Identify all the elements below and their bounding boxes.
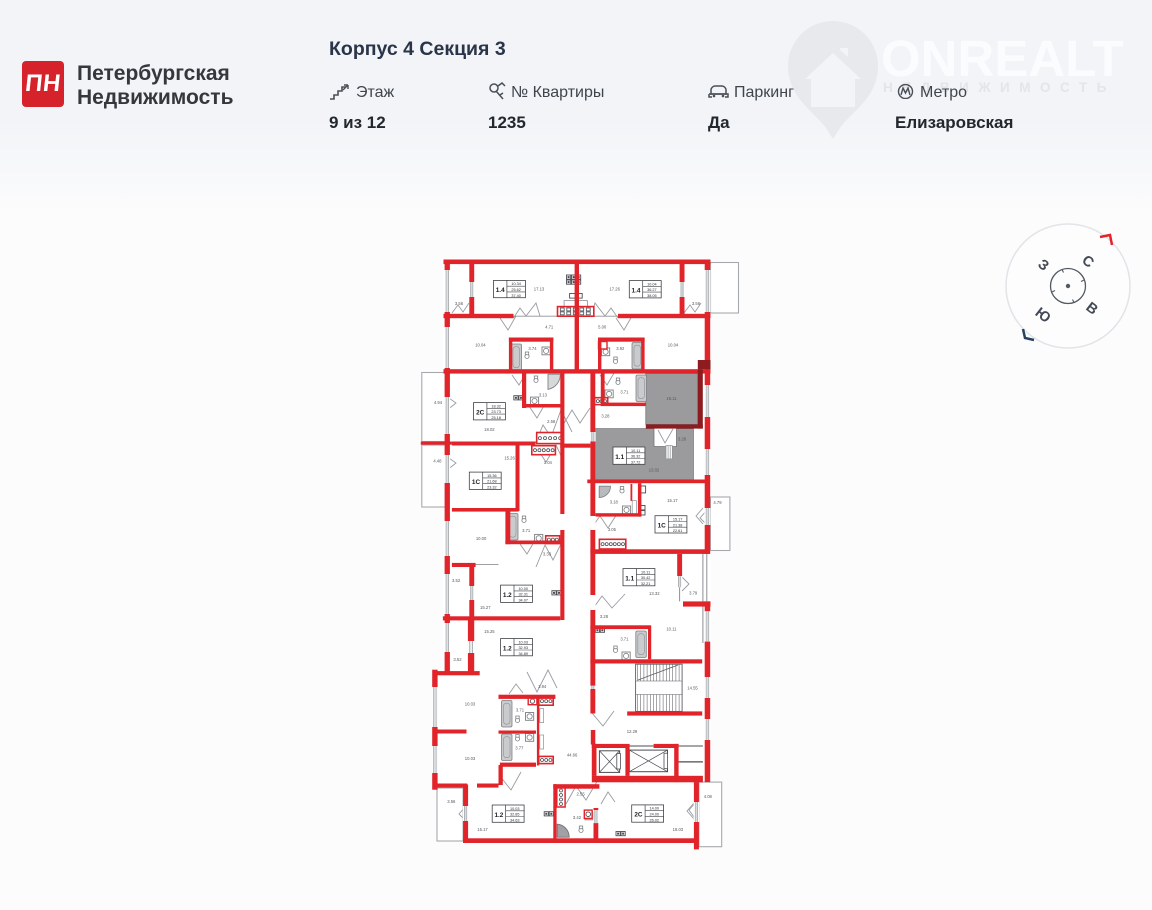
- svg-text:3.52: 3.52: [452, 578, 461, 583]
- svg-text:3.28: 3.28: [601, 414, 610, 419]
- svg-text:1.4: 1.4: [496, 287, 505, 294]
- svg-text:3.52: 3.52: [453, 657, 462, 662]
- svg-text:13.32: 13.32: [649, 591, 660, 596]
- svg-text:3.74: 3.74: [528, 346, 537, 351]
- svg-text:23.32: 23.32: [487, 486, 497, 490]
- svg-text:15.17: 15.17: [673, 518, 683, 522]
- svg-text:1.1: 1.1: [615, 454, 624, 461]
- svg-text:1.2: 1.2: [503, 645, 512, 652]
- svg-text:3.42: 3.42: [573, 815, 582, 820]
- svg-text:4.94: 4.94: [434, 400, 443, 405]
- svg-text:15.26: 15.26: [504, 456, 515, 461]
- svg-text:3.28: 3.28: [678, 436, 687, 441]
- svg-text:24.00: 24.00: [650, 813, 660, 817]
- svg-text:36.32: 36.32: [631, 455, 641, 459]
- svg-text:10.04: 10.04: [475, 343, 486, 348]
- svg-text:32.93: 32.93: [518, 646, 528, 650]
- svg-text:3.92: 3.92: [616, 346, 625, 351]
- svg-text:22.61: 22.61: [673, 529, 683, 533]
- svg-text:34.07: 34.07: [518, 599, 528, 603]
- svg-text:10.11: 10.11: [631, 449, 640, 453]
- svg-text:4.71: 4.71: [545, 325, 554, 330]
- svg-text:10.04: 10.04: [647, 282, 657, 286]
- svg-text:32.85: 32.85: [510, 813, 520, 817]
- svg-text:36.27: 36.27: [647, 288, 657, 292]
- svg-text:16.11: 16.11: [666, 396, 677, 401]
- svg-text:3.18: 3.18: [610, 500, 619, 505]
- svg-text:23.73: 23.73: [491, 410, 501, 414]
- svg-text:4.48: 4.48: [433, 459, 442, 464]
- svg-text:2С: 2С: [634, 812, 643, 819]
- svg-text:3.04: 3.04: [544, 460, 553, 465]
- svg-text:37.72: 37.72: [631, 460, 641, 464]
- svg-text:26.02: 26.02: [650, 818, 660, 822]
- svg-text:10.00: 10.00: [518, 587, 528, 591]
- svg-text:3.71: 3.71: [522, 528, 531, 533]
- svg-text:3.71: 3.71: [516, 708, 525, 713]
- svg-text:3.56: 3.56: [692, 301, 701, 306]
- svg-text:14.00: 14.00: [650, 807, 660, 811]
- svg-text:25.62: 25.62: [511, 288, 521, 292]
- svg-text:10.34: 10.34: [511, 282, 521, 286]
- svg-text:18.02: 18.02: [484, 427, 495, 432]
- svg-text:3.33: 3.33: [543, 551, 552, 556]
- svg-text:3.05: 3.05: [608, 527, 617, 532]
- svg-text:ONREALT: ONREALT: [881, 30, 1124, 87]
- svg-text:1С: 1С: [472, 479, 481, 486]
- svg-text:3.28: 3.28: [600, 614, 609, 619]
- svg-text:1.4: 1.4: [632, 287, 641, 294]
- svg-text:13.02: 13.02: [649, 468, 660, 473]
- svg-text:12.29: 12.29: [627, 729, 638, 734]
- svg-text:1.2: 1.2: [494, 812, 503, 819]
- svg-text:3.79: 3.79: [689, 590, 698, 595]
- svg-text:17.26: 17.26: [609, 287, 620, 292]
- svg-text:18.32: 18.32: [491, 404, 501, 408]
- svg-text:18.03: 18.03: [673, 827, 684, 832]
- svg-text:10.03: 10.03: [510, 807, 520, 811]
- svg-text:3.56: 3.56: [455, 301, 464, 306]
- svg-text:21.38: 21.38: [673, 523, 683, 527]
- svg-text:14.55: 14.55: [687, 685, 698, 690]
- svg-text:37.40: 37.40: [511, 294, 521, 298]
- svg-text:32.31: 32.31: [518, 593, 528, 597]
- svg-text:21.68: 21.68: [487, 480, 497, 484]
- svg-text:10.03: 10.03: [465, 702, 476, 707]
- svg-text:5.00: 5.00: [598, 325, 607, 330]
- svg-text:10.03: 10.03: [518, 640, 528, 644]
- svg-text:4.79: 4.79: [713, 500, 722, 505]
- svg-text:38.05: 38.05: [647, 294, 657, 298]
- svg-text:10.11: 10.11: [641, 570, 650, 574]
- svg-text:1.1: 1.1: [625, 575, 634, 582]
- svg-text:2.58: 2.58: [547, 419, 556, 424]
- svg-text:25.18: 25.18: [491, 416, 501, 420]
- svg-text:44.66: 44.66: [567, 753, 578, 758]
- svg-text:30.42: 30.42: [641, 576, 651, 580]
- svg-text:15.17: 15.17: [477, 827, 488, 832]
- svg-text:34.63: 34.63: [510, 818, 520, 822]
- svg-text:15.27: 15.27: [480, 605, 491, 610]
- svg-text:НЕДВИЖИМОСТЬ: НЕДВИЖИМОСТЬ: [883, 80, 1116, 95]
- svg-text:3.56: 3.56: [447, 799, 456, 804]
- svg-text:2.55: 2.55: [577, 791, 586, 796]
- svg-text:10.00: 10.00: [476, 536, 487, 541]
- svg-text:15.36: 15.36: [487, 474, 497, 478]
- svg-text:3.71: 3.71: [620, 637, 629, 642]
- svg-text:3.13: 3.13: [539, 393, 548, 398]
- svg-text:15.25: 15.25: [484, 629, 495, 634]
- svg-text:32.21: 32.21: [641, 582, 651, 586]
- svg-text:1С: 1С: [658, 523, 667, 530]
- svg-text:10.04: 10.04: [668, 343, 679, 348]
- svg-text:2С: 2С: [476, 409, 485, 416]
- svg-text:1.2: 1.2: [503, 592, 512, 599]
- svg-text:34.89: 34.89: [518, 652, 528, 656]
- svg-text:17.13: 17.13: [534, 287, 545, 292]
- svg-text:15.17: 15.17: [667, 498, 678, 503]
- svg-text:3.77: 3.77: [515, 746, 524, 751]
- svg-text:3.71: 3.71: [620, 390, 629, 395]
- svg-text:10.11: 10.11: [666, 627, 677, 632]
- svg-text:10.03: 10.03: [465, 756, 476, 761]
- svg-text:3.94: 3.94: [538, 684, 547, 689]
- svg-text:4.08: 4.08: [704, 794, 713, 799]
